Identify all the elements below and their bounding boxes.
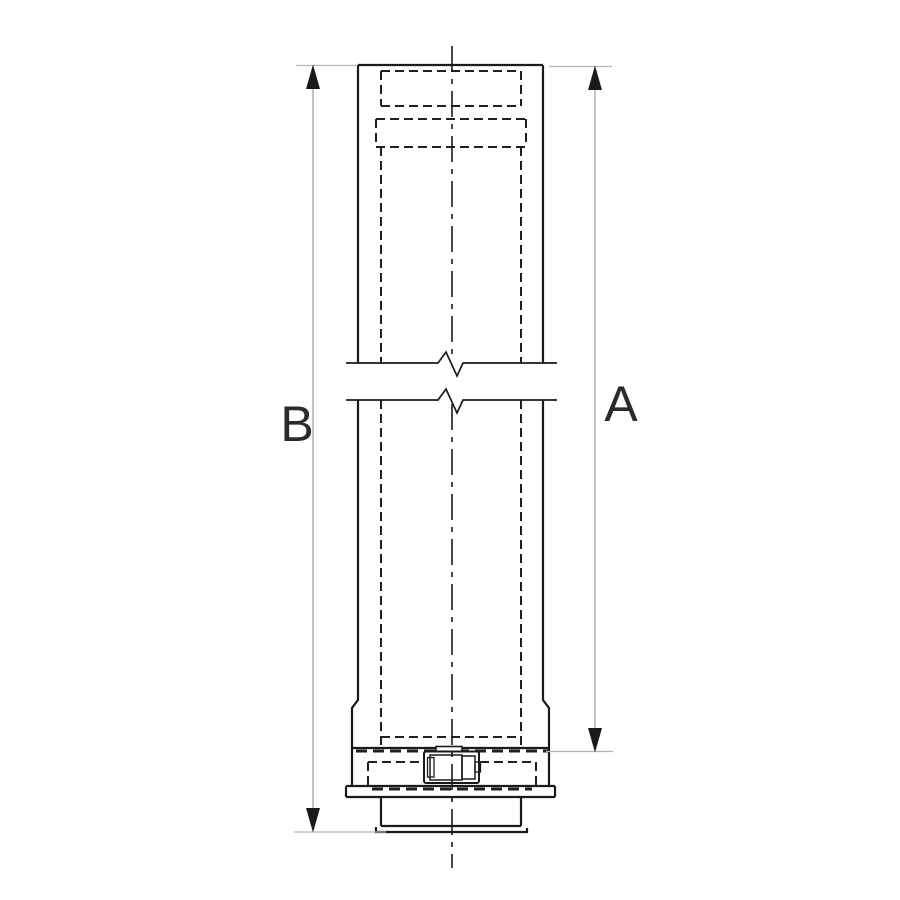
dimension-a: A bbox=[546, 66, 638, 753]
pipe-outer-outline bbox=[346, 65, 555, 832]
break-lines bbox=[346, 352, 557, 413]
arrow-up-icon bbox=[588, 66, 602, 91]
arrow-up-icon bbox=[306, 65, 320, 90]
pipe-elevation-drawing: B A bbox=[0, 0, 900, 900]
arrow-down-icon bbox=[306, 808, 320, 833]
dimension-a-label: A bbox=[604, 376, 638, 432]
upper-break-line bbox=[346, 352, 557, 376]
technical-drawing-canvas: B A bbox=[0, 0, 900, 900]
dimension-a-extension-lines bbox=[546, 67, 613, 752]
dimension-b-label: B bbox=[280, 396, 313, 452]
arrow-down-icon bbox=[588, 728, 602, 753]
dimension-b: B bbox=[280, 65, 386, 833]
